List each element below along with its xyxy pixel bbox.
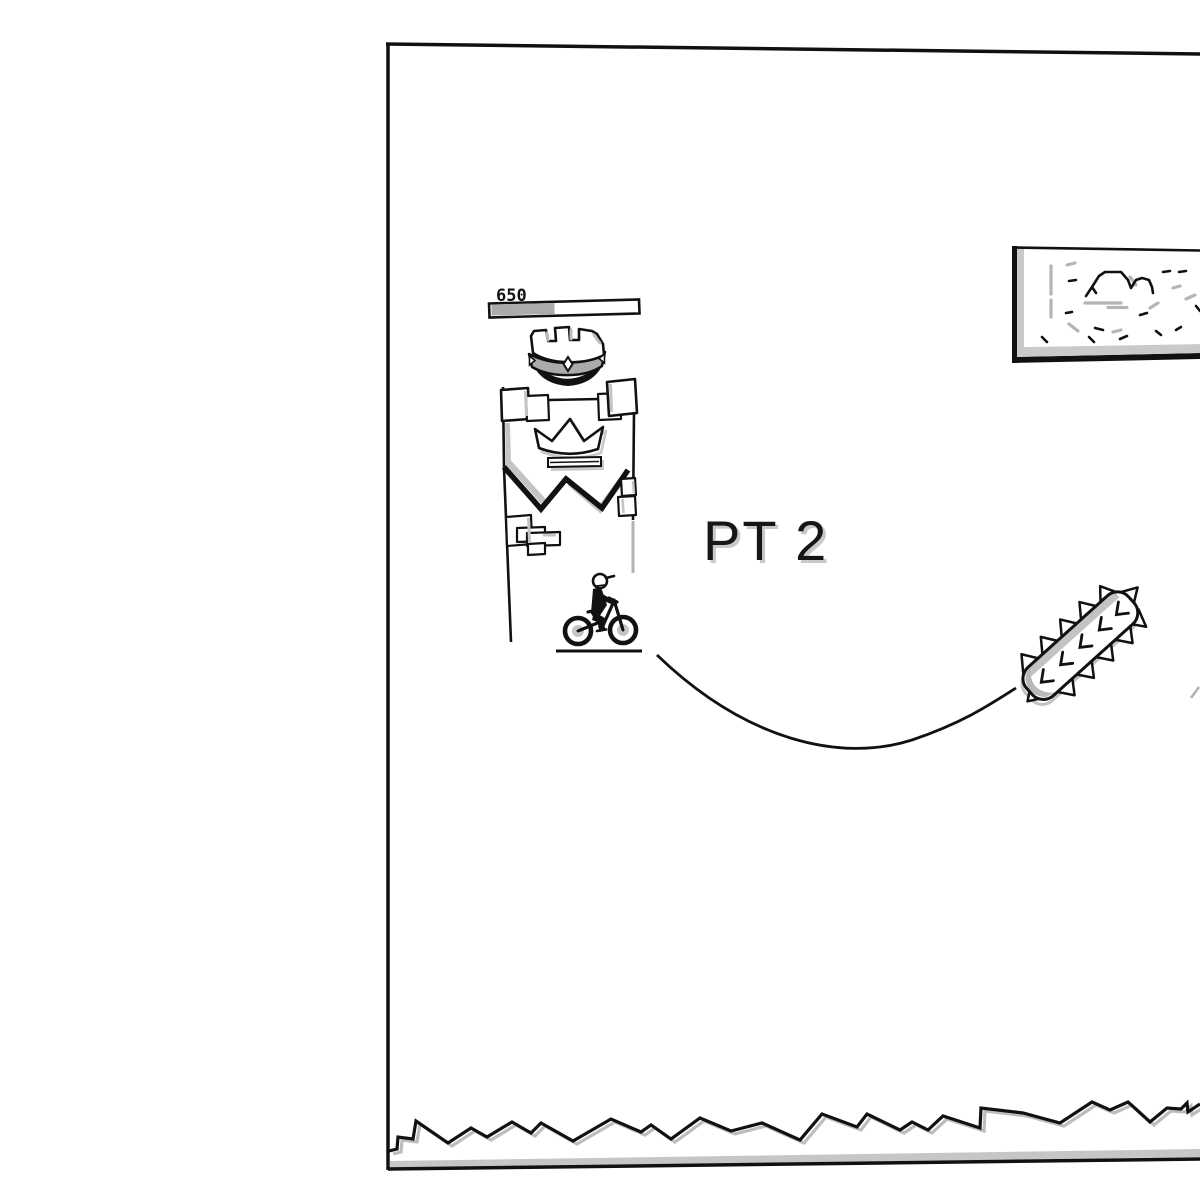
crown-emblem-base-line [550,462,599,463]
level-title: PT 2 [703,509,828,572]
track-curve-right-stub [1191,687,1199,698]
hud-progress: 650 [489,286,640,318]
banner-ruin-blocks-right [618,478,636,516]
sign-frame-left [1012,246,1018,363]
banner-left-inner-shade [508,423,509,464]
level-frame [386,43,1200,1171]
banner-zigzag-bottom [504,467,628,509]
progress-fill [491,303,554,316]
ruin-block [528,543,545,555]
jagged-terrain [389,1102,1200,1154]
game-viewport[interactable]: 650 [0,0,1200,1200]
banner-crossbar [549,399,600,400]
frame-top-border [386,44,1200,54]
track-curve [657,655,1016,748]
screenshot-root: 650 [0,0,1200,1200]
sign-frame-top [1014,248,1200,251]
helmet-strap [596,585,604,586]
rider-group [556,574,642,651]
banner-block-top-left-small [526,395,549,421]
rider-torso [591,587,607,617]
helmet-brim [606,576,614,578]
crown-emblem-outline [535,419,603,454]
banner-ruin-blocks-left [506,515,560,555]
framed-sign [1012,246,1200,363]
spiked-log-obstacle [1001,567,1163,722]
king-crown-icon [529,327,605,386]
ruin-block [618,496,636,516]
crown-emblem-icon [535,419,606,471]
